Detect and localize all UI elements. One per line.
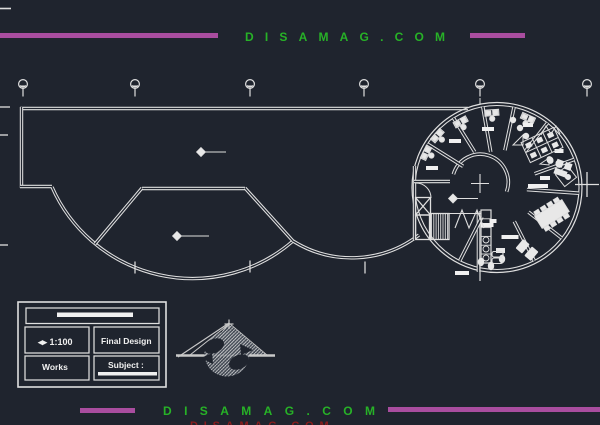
svg-text:Works: Works: [42, 362, 68, 372]
svg-text:Final Design: Final Design: [101, 336, 152, 346]
svg-text:DISAMAG.COM: DISAMAG.COM: [163, 404, 387, 418]
svg-text:◂▸ 1:100: ◂▸ 1:100: [37, 337, 73, 347]
svg-text:DISAMAG.COM: DISAMAG.COM: [245, 30, 456, 44]
svg-text:DISAMAG.COM: DISAMAG.COM: [190, 420, 334, 425]
svg-text:Subject :: Subject :: [108, 360, 144, 370]
